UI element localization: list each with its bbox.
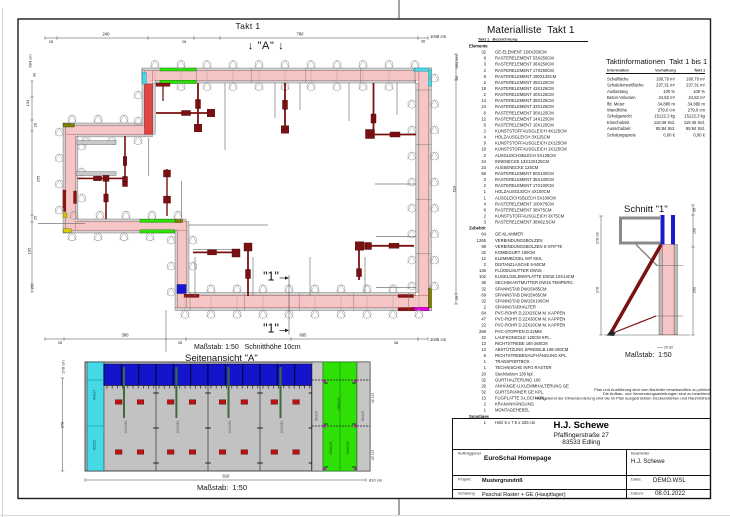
svg-text:25: 25 xyxy=(34,216,38,220)
svg-text:20: 20 xyxy=(34,123,38,127)
svg-text:150x125: 150x125 xyxy=(329,442,333,455)
svg-text:240: 240 xyxy=(103,32,111,37)
svg-text:"1": "1" xyxy=(263,321,279,335)
svg-text:684 cm: 684 cm xyxy=(28,54,33,68)
svg-text:278: 278 xyxy=(60,421,65,428)
svg-text:1045 cm: 1045 cm xyxy=(430,337,447,342)
svg-text:28: 28 xyxy=(182,40,186,44)
svg-text:150x250: 150x250 xyxy=(124,420,128,433)
svg-text:25: 25 xyxy=(455,296,459,300)
svg-text:35: 35 xyxy=(693,208,697,212)
svg-text:150x250: 150x250 xyxy=(176,420,180,433)
svg-text:"1": "1" xyxy=(263,269,279,283)
svg-text:134: 134 xyxy=(25,99,30,106)
svg-text:780: 780 xyxy=(297,32,305,37)
svg-text:28: 28 xyxy=(49,40,53,44)
svg-text:38: 38 xyxy=(421,40,425,44)
svg-text:150x125: 150x125 xyxy=(337,398,341,411)
svg-text:28: 28 xyxy=(58,341,62,345)
svg-text:100: 100 xyxy=(693,228,697,234)
svg-text:25 cm: 25 cm xyxy=(664,346,673,350)
svg-text:810: 810 xyxy=(223,474,231,479)
svg-text:278 cm: 278 cm xyxy=(61,360,66,374)
svg-text:255: 255 xyxy=(36,175,41,182)
svg-text:195: 195 xyxy=(27,247,32,254)
svg-text:38: 38 xyxy=(394,341,398,345)
svg-text:629: 629 xyxy=(452,185,457,192)
svg-text:810 cm: 810 cm xyxy=(369,478,383,483)
svg-text:665: 665 xyxy=(300,333,308,338)
svg-text:28: 28 xyxy=(178,341,182,345)
svg-text:250: 250 xyxy=(693,287,697,293)
svg-text:30: 30 xyxy=(33,73,37,77)
svg-text:25: 25 xyxy=(31,285,35,289)
svg-text:40x125: 40x125 xyxy=(93,390,97,401)
svg-text:AE 125: AE 125 xyxy=(371,450,375,461)
svg-text:30: 30 xyxy=(455,76,459,80)
svg-text:30x125: 30x125 xyxy=(315,411,319,422)
svg-text:380: 380 xyxy=(122,333,130,338)
svg-text:150x250: 150x250 xyxy=(280,420,284,433)
svg-text:40x125: 40x125 xyxy=(93,440,97,451)
svg-text:1048 cm: 1048 cm xyxy=(430,34,447,39)
svg-text:30x125: 30x125 xyxy=(361,411,365,422)
svg-text:150x250: 150x250 xyxy=(228,420,232,433)
svg-text:AE 125: AE 125 xyxy=(371,393,375,404)
svg-text:684 cm: 684 cm xyxy=(454,55,459,69)
svg-text:150x125: 150x125 xyxy=(346,442,350,455)
